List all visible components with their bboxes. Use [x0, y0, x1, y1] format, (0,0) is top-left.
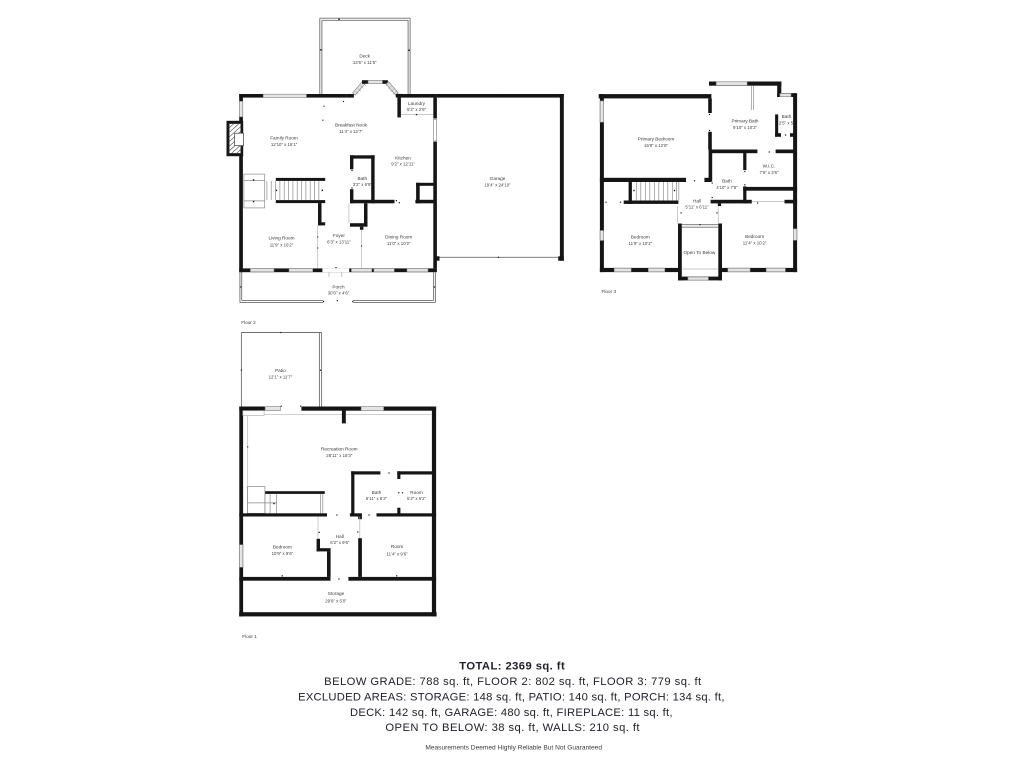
svg-text:Bath: Bath: [357, 176, 367, 181]
svg-text:3’2” x 6’9”: 3’2” x 6’9”: [353, 182, 373, 187]
svg-text:5’2” x 6’2”: 5’2” x 6’2”: [407, 496, 427, 501]
svg-text:Primary Bath: Primary Bath: [731, 119, 758, 124]
svg-text:Living Room: Living Room: [268, 236, 294, 241]
svg-text:28’11” x 15’3”: 28’11” x 15’3”: [326, 453, 353, 458]
svg-text:Foyer: Foyer: [333, 233, 345, 238]
svg-text:6’2” x 9’6”: 6’2” x 9’6”: [330, 540, 350, 545]
svg-text:13’6” x 11’5”: 13’6” x 11’5”: [353, 60, 377, 65]
svg-text:30’0” x 4’6”: 30’0” x 4’6”: [328, 291, 350, 296]
svg-text:W.I.C.: W.I.C.: [763, 163, 776, 168]
svg-text:Bath: Bath: [372, 490, 382, 495]
svg-text:10’9” x 9’6”: 10’9” x 9’6”: [272, 551, 294, 556]
svg-text:Bath: Bath: [782, 114, 792, 119]
svg-text:BELOW GRADE: 788 sq. ft, FLOOR: BELOW GRADE: 788 sq. ft, FLOOR 2: 802 sq…: [324, 676, 702, 688]
svg-text:Dining Room: Dining Room: [385, 234, 412, 239]
svg-text:EXCLUDED AREAS: STORAGE: 148 s: EXCLUDED AREAS: STORAGE: 148 sq. ft, PAT…: [298, 692, 725, 704]
svg-text:Floor 1: Floor 1: [242, 634, 257, 639]
svg-text:Hall: Hall: [693, 199, 701, 204]
svg-text:Family Room: Family Room: [270, 136, 298, 141]
svg-text:Recreation Room: Recreation Room: [321, 447, 358, 452]
svg-text:Primary Bedroom: Primary Bedroom: [638, 137, 675, 142]
svg-text:Laundry: Laundry: [408, 101, 426, 106]
svg-text:11’9” x 10’2”: 11’9” x 10’2”: [629, 241, 653, 246]
svg-text:12’10” x 16’1”: 12’10” x 16’1”: [271, 142, 298, 147]
svg-text:9’2” x 12’11”: 9’2” x 12’11”: [391, 162, 415, 167]
svg-text:11’4” x 10’2”: 11’4” x 10’2”: [743, 240, 767, 245]
svg-text:Breakfast Nook: Breakfast Nook: [335, 122, 368, 127]
svg-text:Floor 3: Floor 3: [602, 289, 617, 294]
svg-text:12’1” x 11’7”: 12’1” x 11’7”: [269, 375, 293, 380]
svg-text:Measurements Deemed Highly Rel: Measurements Deemed Highly Reliable But …: [425, 744, 602, 751]
svg-text:6’3” x 13’11”: 6’3” x 13’11”: [327, 240, 351, 245]
svg-text:19’4” x 24’10”: 19’4” x 24’10”: [484, 182, 511, 187]
svg-text:Room: Room: [410, 490, 423, 495]
svg-text:6’11” x 6’2”: 6’11” x 6’2”: [366, 496, 388, 501]
svg-text:Bedroom: Bedroom: [273, 545, 292, 550]
svg-text:Kitchen: Kitchen: [395, 156, 411, 161]
svg-text:7’6” x 3’6”: 7’6” x 3’6”: [759, 170, 779, 175]
svg-text:16’8” x 12’8”: 16’8” x 12’8”: [644, 143, 668, 148]
svg-text:29’9” x 5’0”: 29’9” x 5’0”: [325, 599, 347, 604]
svg-text:OPEN TO BELOW: 38 sq. ft, WALL: OPEN TO BELOW: 38 sq. ft, WALLS: 210 sq.…: [385, 722, 640, 734]
svg-text:Bedroom: Bedroom: [745, 234, 764, 239]
svg-text:DECK: 142 sq. ft, GARAGE: 480: DECK: 142 sq. ft, GARAGE: 480 sq. ft, FI…: [350, 707, 673, 719]
svg-text:9’10” x 10’2”: 9’10” x 10’2”: [733, 125, 757, 130]
svg-text:Garage: Garage: [490, 176, 506, 181]
svg-text:4’10” x 7’5”: 4’10” x 7’5”: [716, 185, 738, 190]
svg-text:2’5” x 5’: 2’5” x 5’: [779, 120, 794, 125]
svg-text:Open To Below: Open To Below: [684, 250, 716, 255]
svg-text:Bath: Bath: [722, 179, 732, 184]
svg-text:Hall: Hall: [336, 534, 344, 539]
svg-text:Deck: Deck: [359, 54, 370, 59]
svg-text:Patio: Patio: [275, 368, 286, 373]
svg-text:5’2” x 2’9”: 5’2” x 2’9”: [407, 107, 427, 112]
svg-text:5’11” x 6’11”: 5’11” x 6’11”: [685, 205, 709, 210]
svg-text:TOTAL: 2369 sq. ft: TOTAL: 2369 sq. ft: [459, 660, 565, 672]
svg-text:Bedroom: Bedroom: [631, 234, 650, 239]
svg-text:Room: Room: [391, 544, 404, 549]
svg-text:Storage: Storage: [328, 591, 345, 596]
svg-text:Floor 2: Floor 2: [241, 320, 256, 325]
svg-text:11’4” x 9’6”: 11’4” x 9’6”: [387, 552, 409, 557]
svg-text:11’4” x 12’7”: 11’4” x 12’7”: [339, 129, 363, 134]
svg-text:11’9” x 10’2”: 11’9” x 10’2”: [270, 242, 294, 247]
svg-text:11’0” x 10’2”: 11’0” x 10’2”: [387, 241, 411, 246]
svg-text:Porch: Porch: [332, 285, 345, 290]
